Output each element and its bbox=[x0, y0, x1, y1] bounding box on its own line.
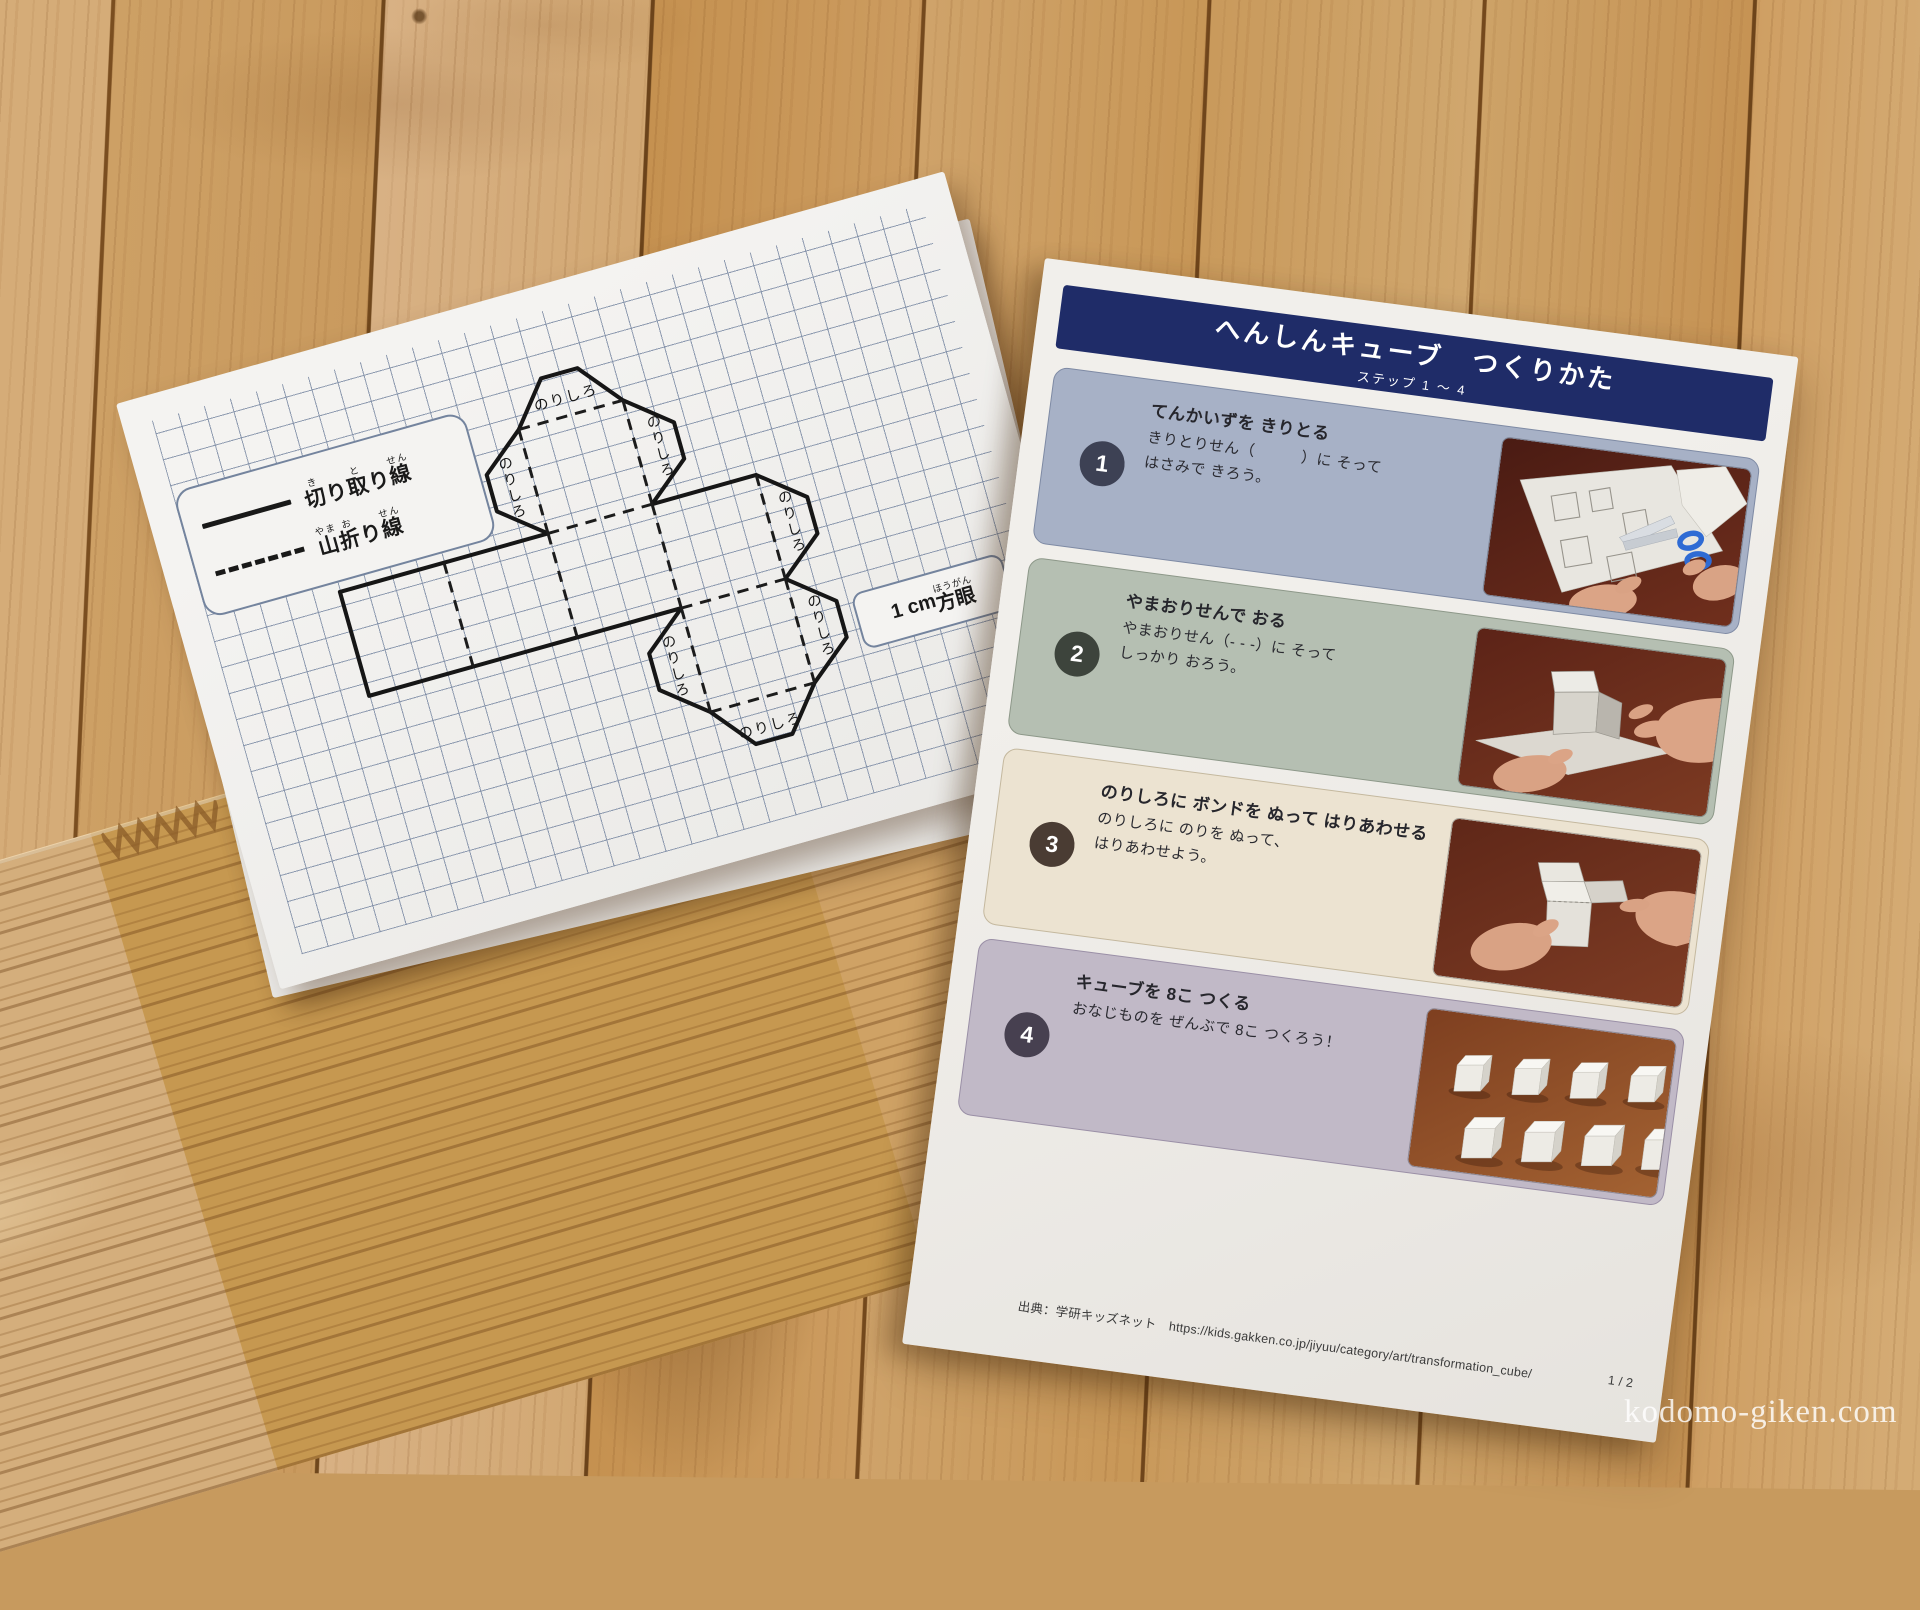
step-3-number-badge: 3 bbox=[1027, 819, 1077, 869]
mountain-fold-lines bbox=[415, 371, 815, 771]
page-number: 1 / 2 bbox=[1606, 1373, 1634, 1395]
scale-badge-kanji: 方眼ほうがん bbox=[931, 574, 978, 617]
step-4-photo-eight-finished-cubes bbox=[1407, 1007, 1678, 1199]
finger-joint-seam bbox=[99, 794, 225, 866]
instruction-sheet: へんしんキューブ つくりかた ステップ 1 〜 4 1 てんかいずを きりとる … bbox=[902, 258, 1798, 1443]
fold-line-label: 山やま折おり線せん bbox=[313, 505, 407, 563]
step-1-number-badge: 1 bbox=[1077, 438, 1127, 488]
step-1-body: きりとりせん（ ）に そって はさみで きろう。 bbox=[1142, 426, 1383, 506]
step-2-number-badge: 2 bbox=[1052, 629, 1102, 679]
step-1-photo-cutting-net-with-scissors bbox=[1482, 436, 1753, 628]
step-2-photo-folding-cube-by-hand bbox=[1457, 627, 1728, 819]
site-watermark: kodomo-giken.com bbox=[1624, 1394, 1898, 1431]
scale-badge-prefix: 1 cm bbox=[889, 589, 939, 623]
step-4-number-badge: 4 bbox=[1002, 1010, 1052, 1060]
step-2-body: やまおりせん（- - -）に そって しっかり おろう。 bbox=[1117, 616, 1337, 693]
step-3-photo-gluing-glue-tabs bbox=[1432, 817, 1703, 1009]
source-citation: 出典：学研キッズネット https://kids.gakken.co.jp/ji… bbox=[1017, 1296, 1533, 1382]
solid-line-sample bbox=[202, 499, 292, 529]
dashed-line-sample bbox=[215, 547, 305, 577]
